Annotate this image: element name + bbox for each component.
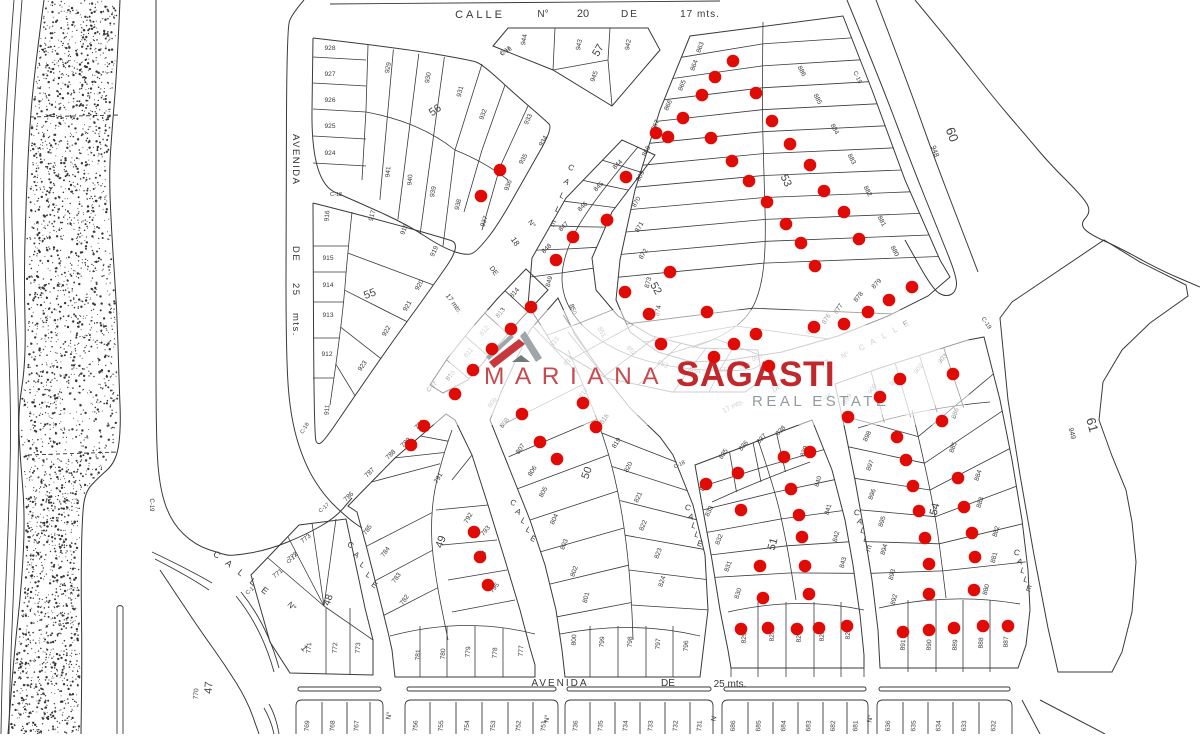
svg-text:682: 682 xyxy=(830,720,837,732)
svg-text:mts.: mts. xyxy=(290,313,301,337)
svg-text:781: 781 xyxy=(415,649,422,661)
svg-text:796: 796 xyxy=(683,640,690,652)
svg-text:684: 684 xyxy=(780,720,787,732)
svg-text:C-19: C-19 xyxy=(148,498,154,512)
svg-text:634: 634 xyxy=(935,720,942,732)
svg-text:911: 911 xyxy=(324,404,332,415)
svg-text:769: 769 xyxy=(304,720,311,732)
svg-text:913: 913 xyxy=(322,312,333,319)
svg-text:916: 916 xyxy=(324,210,332,222)
svg-text:925: 925 xyxy=(324,123,335,130)
svg-text:772: 772 xyxy=(332,642,339,654)
svg-text:AVENIDA: AVENIDA xyxy=(531,678,588,689)
svg-text:888: 888 xyxy=(978,637,985,649)
svg-text:736: 736 xyxy=(572,720,579,732)
svg-text:755: 755 xyxy=(438,720,445,732)
svg-text:753: 753 xyxy=(490,720,497,732)
svg-text:681: 681 xyxy=(852,720,859,732)
svg-text:633: 633 xyxy=(961,720,968,732)
svg-text:731: 731 xyxy=(696,720,703,732)
svg-text:798: 798 xyxy=(627,636,634,648)
svg-text:940: 940 xyxy=(407,174,415,186)
svg-text:735: 735 xyxy=(597,720,604,732)
svg-text:800: 800 xyxy=(571,634,578,646)
svg-text:636: 636 xyxy=(885,720,892,732)
svg-text:DE: DE xyxy=(661,678,675,689)
svg-text:C-18: C-18 xyxy=(330,192,342,198)
svg-text:683: 683 xyxy=(805,720,812,732)
svg-text:733: 733 xyxy=(647,720,654,732)
svg-text:N°: N° xyxy=(865,714,874,723)
svg-text:768: 768 xyxy=(329,720,336,732)
svg-text:732: 732 xyxy=(672,720,679,732)
svg-text:DE: DE xyxy=(621,9,639,20)
svg-text:CALLE: CALLE xyxy=(455,9,505,21)
svg-text:927: 927 xyxy=(324,71,335,78)
svg-text:DE: DE xyxy=(290,246,301,262)
svg-text:770: 770 xyxy=(193,688,201,700)
svg-text:17 mts.: 17 mts. xyxy=(680,9,720,20)
svg-text:20: 20 xyxy=(577,8,589,20)
svg-text:889: 889 xyxy=(952,639,959,651)
svg-text:756: 756 xyxy=(412,720,419,732)
svg-text:777: 777 xyxy=(518,645,525,657)
svg-text:635: 635 xyxy=(910,720,917,732)
svg-text:N°: N° xyxy=(542,714,551,723)
svg-text:773: 773 xyxy=(355,642,362,654)
svg-text:25 mts.: 25 mts. xyxy=(714,679,747,690)
svg-text:941: 941 xyxy=(385,166,393,178)
svg-text:685: 685 xyxy=(755,720,762,732)
svg-text:734: 734 xyxy=(622,720,629,732)
svg-text:SAGASTI: SAGASTI xyxy=(676,355,835,394)
svg-text:25: 25 xyxy=(290,283,301,297)
svg-text:767: 767 xyxy=(353,720,360,732)
svg-text:926: 926 xyxy=(324,97,335,104)
svg-text:891: 891 xyxy=(900,639,907,651)
svg-text:N°: N° xyxy=(384,711,393,720)
svg-text:N°: N° xyxy=(537,9,548,20)
svg-text:887: 887 xyxy=(1003,636,1010,648)
svg-text:778: 778 xyxy=(492,647,499,659)
svg-text:47: 47 xyxy=(203,681,216,694)
svg-text:912: 912 xyxy=(321,351,332,358)
svg-text:779: 779 xyxy=(465,646,472,658)
svg-text:REAL ESTATE: REAL ESTATE xyxy=(752,393,889,410)
svg-text:928: 928 xyxy=(324,45,335,52)
svg-text:799: 799 xyxy=(599,636,606,648)
svg-text:MARIANA: MARIANA xyxy=(484,363,669,390)
svg-text:890: 890 xyxy=(926,639,933,651)
svg-text:686: 686 xyxy=(730,720,737,732)
svg-text:915: 915 xyxy=(322,255,333,262)
svg-text:797: 797 xyxy=(655,638,662,650)
svg-text:632: 632 xyxy=(990,720,997,732)
svg-text:924: 924 xyxy=(324,150,335,157)
svg-text:754: 754 xyxy=(464,720,471,732)
svg-text:752: 752 xyxy=(515,720,522,732)
svg-text:780: 780 xyxy=(440,648,447,660)
svg-text:914: 914 xyxy=(322,282,333,289)
svg-text:AVENIDA: AVENIDA xyxy=(290,134,301,186)
